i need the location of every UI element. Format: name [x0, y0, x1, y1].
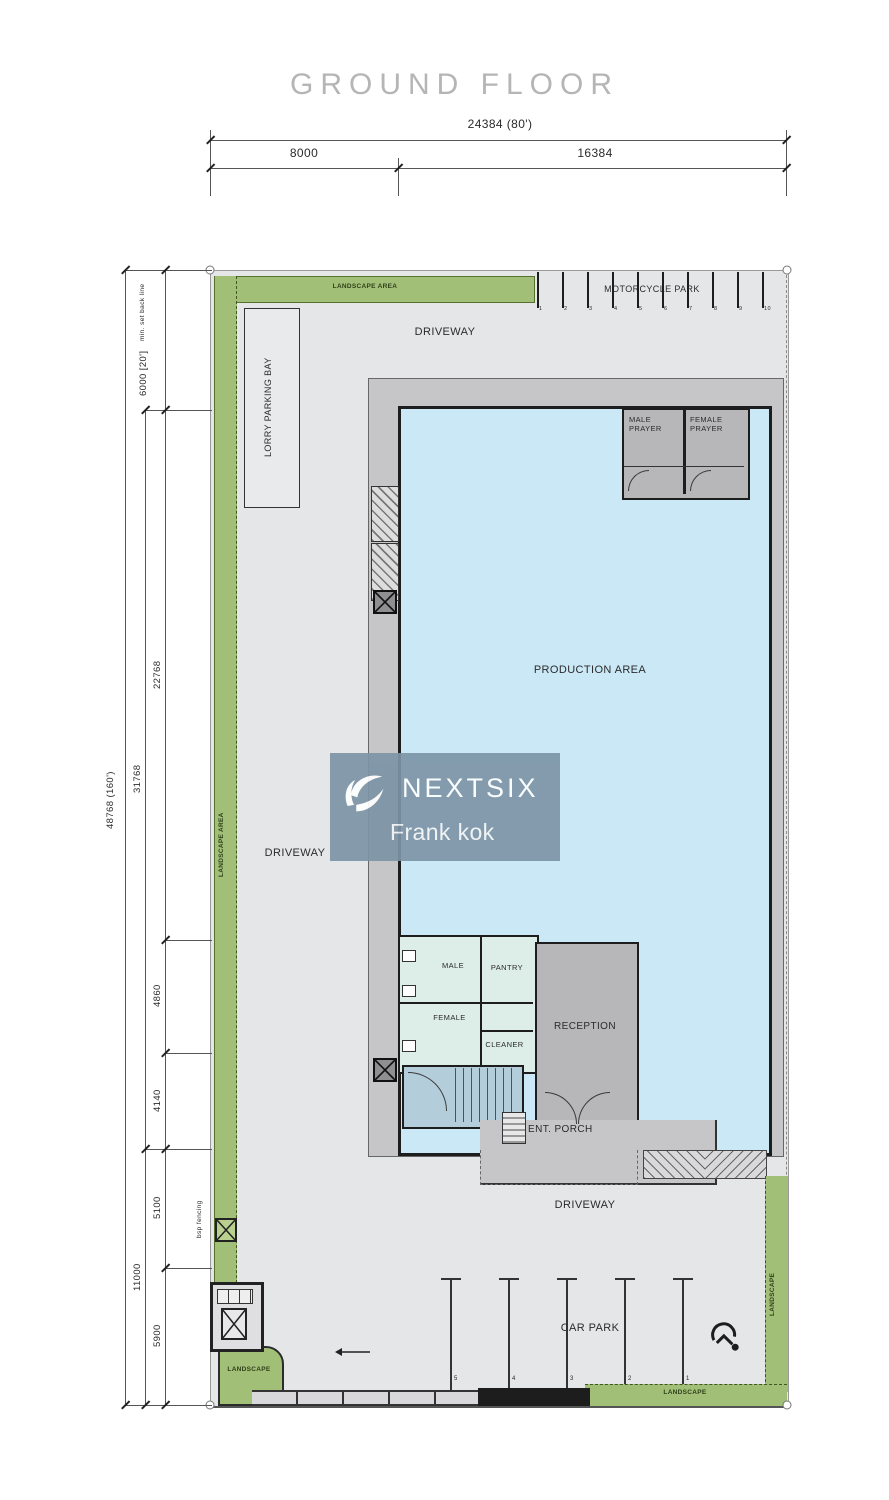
dim-connector: [125, 270, 212, 271]
moto-divider: [637, 272, 639, 308]
dim-line-top-overall: [210, 140, 787, 141]
gate: [478, 1388, 590, 1406]
moto-divider: [662, 272, 664, 308]
moto-divider: [737, 272, 739, 308]
moto-bay-number: 6: [664, 306, 667, 312]
dim-line-left-overall: [125, 270, 126, 1405]
carpark-cap: [673, 1278, 693, 1280]
toilet-partition-h: [400, 1002, 533, 1004]
moto-bay-number: 1: [539, 306, 542, 312]
wc-fixture: [402, 1040, 416, 1052]
guard-house-windows: [217, 1289, 253, 1304]
car-bay-number: 4: [512, 1376, 516, 1382]
loading-dock-hatch: [371, 486, 399, 542]
male-prayer-label: MALE PRAYER: [629, 416, 673, 433]
moto-divider: [612, 272, 614, 308]
boundary-marker: [783, 1401, 792, 1410]
moto-bay-number: 8: [714, 306, 717, 312]
car-bay-number: 5: [454, 1376, 458, 1382]
hatch-box-icon: [221, 1308, 247, 1340]
carpark-divider: [450, 1278, 452, 1390]
dim-11000: 11000: [132, 1242, 143, 1312]
moto-bay-number: 9: [739, 306, 742, 312]
cleaner-label: CLEANER: [477, 1040, 532, 1049]
ramp-hatch-right: [705, 1151, 766, 1178]
wc-fixture: [402, 985, 416, 997]
dim-line-left-segments: [165, 270, 166, 1405]
moto-bay-number: 5: [639, 306, 642, 312]
carpark-divider: [508, 1278, 510, 1390]
moto-divider: [687, 272, 689, 308]
roller-shutter-icon: [373, 590, 397, 614]
male-label: MALE: [428, 961, 478, 970]
landscape-top-label: LANDSCAPE AREA: [300, 283, 430, 290]
dim-line-left-mid: [145, 410, 146, 1405]
dim-ext-mid: [398, 158, 399, 196]
ramp: [643, 1150, 767, 1179]
dim-top-overall: 24384 (80'): [400, 117, 600, 131]
moto-divider: [712, 272, 714, 308]
car-bay-number: 2: [628, 1376, 632, 1382]
dim-48768: 48768 (160'): [105, 735, 116, 865]
dim-5900: 5900: [152, 1305, 163, 1367]
reception-label: RECEPTION: [535, 1021, 635, 1032]
floor-plan: GROUND FLOOR 24384 (80') 8000 16384 LAND…: [0, 0, 889, 1500]
dim-connector: [145, 410, 212, 411]
dim-4860: 4860: [152, 965, 163, 1027]
dim-top-16384: 16384: [540, 146, 650, 160]
moto-bay-number: 10: [764, 306, 771, 312]
fence: [252, 1390, 480, 1406]
moto-bay-number: 4: [614, 306, 617, 312]
carpark-divider: [624, 1278, 626, 1390]
production-area-label: PRODUCTION AREA: [515, 664, 665, 676]
pantry-label: PANTRY: [482, 963, 532, 972]
car-park-label: CAR PARK: [535, 1322, 645, 1334]
boundary-marker: [783, 266, 792, 275]
bsp-fencing-label: bsp fencing: [196, 1188, 203, 1250]
dim-connector: [165, 1053, 212, 1054]
dim-line-top-segments: [210, 168, 787, 169]
moto-bay-number: 2: [564, 306, 567, 312]
watermark-brand: NEXTSIX: [402, 773, 539, 804]
landscape-bottom-label: LANDSCAPE: [620, 1389, 750, 1396]
female-prayer-label: FEMALE PRAYER: [690, 416, 736, 433]
landscape-left-label: LANDSCAPE AREA: [218, 800, 225, 890]
moto-bay-number: 7: [689, 306, 692, 312]
carpark-cap: [499, 1278, 519, 1280]
dim-5100: 5100: [152, 1177, 163, 1239]
dim-top-8000: 8000: [264, 146, 344, 160]
prayer-partition: [624, 466, 744, 467]
watermark-agent: Frank kok: [390, 819, 495, 846]
dim-connector: [145, 1149, 212, 1150]
car-bay-number: 1: [686, 1376, 690, 1382]
dim-connector: [125, 1405, 212, 1406]
car-bay-number: 3: [570, 1376, 574, 1382]
moto-divider: [587, 272, 589, 308]
dim-22768: 22768: [152, 640, 163, 710]
moto-bay-number: 3: [589, 306, 592, 312]
roller-shutter-icon: [373, 1058, 397, 1082]
entry-arrow-icon: [334, 1346, 372, 1358]
carpark-cap: [615, 1278, 635, 1280]
ent-porch-label: ENT. PORCH: [528, 1124, 593, 1135]
wc-fixture: [402, 950, 416, 962]
dim-connector: [165, 940, 212, 941]
entrance-mat: [502, 1112, 526, 1144]
landscape-corner-label: LANDSCAPE: [220, 1366, 278, 1373]
porch-apron-dashed: [480, 1150, 638, 1185]
carpark-divider: [566, 1278, 568, 1390]
carpark-divider: [682, 1278, 684, 1390]
driveway-mid-label: DRIVEWAY: [255, 847, 335, 859]
carpark-cap: [557, 1278, 577, 1280]
dim-4140: 4140: [152, 1070, 163, 1132]
nextsix-logo-icon: [340, 767, 392, 819]
landscape-right-label: LANDSCAPE: [769, 1252, 776, 1337]
moto-divider: [762, 272, 764, 308]
page-title: GROUND FLOOR: [290, 68, 610, 102]
carpark-cap: [441, 1278, 461, 1280]
moto-divider: [562, 272, 564, 308]
fence-post-icon: [215, 1218, 237, 1242]
dim-6000: 6000 [20']: [138, 334, 149, 412]
prayer-divider-wall: [683, 410, 686, 494]
toilet-partition-h2: [480, 1030, 533, 1032]
dim-connector: [165, 1268, 212, 1269]
toilet-block: [398, 935, 539, 1074]
driveway-top-label: DRIVEWAY: [400, 326, 490, 338]
lorry-parking-bay-label: LORRY PARKING BAY: [263, 340, 273, 474]
moto-divider: [537, 272, 539, 308]
female-label: FEMALE: [422, 1013, 477, 1022]
dim-31768: 31768: [132, 744, 143, 814]
driveway-bottom-label: DRIVEWAY: [540, 1199, 630, 1211]
ramp-hatch-left: [644, 1151, 705, 1178]
watermark: NEXTSIX Frank kok: [330, 753, 560, 861]
motorcycle-park-label: MOTORCYCLE PARK: [572, 284, 732, 294]
